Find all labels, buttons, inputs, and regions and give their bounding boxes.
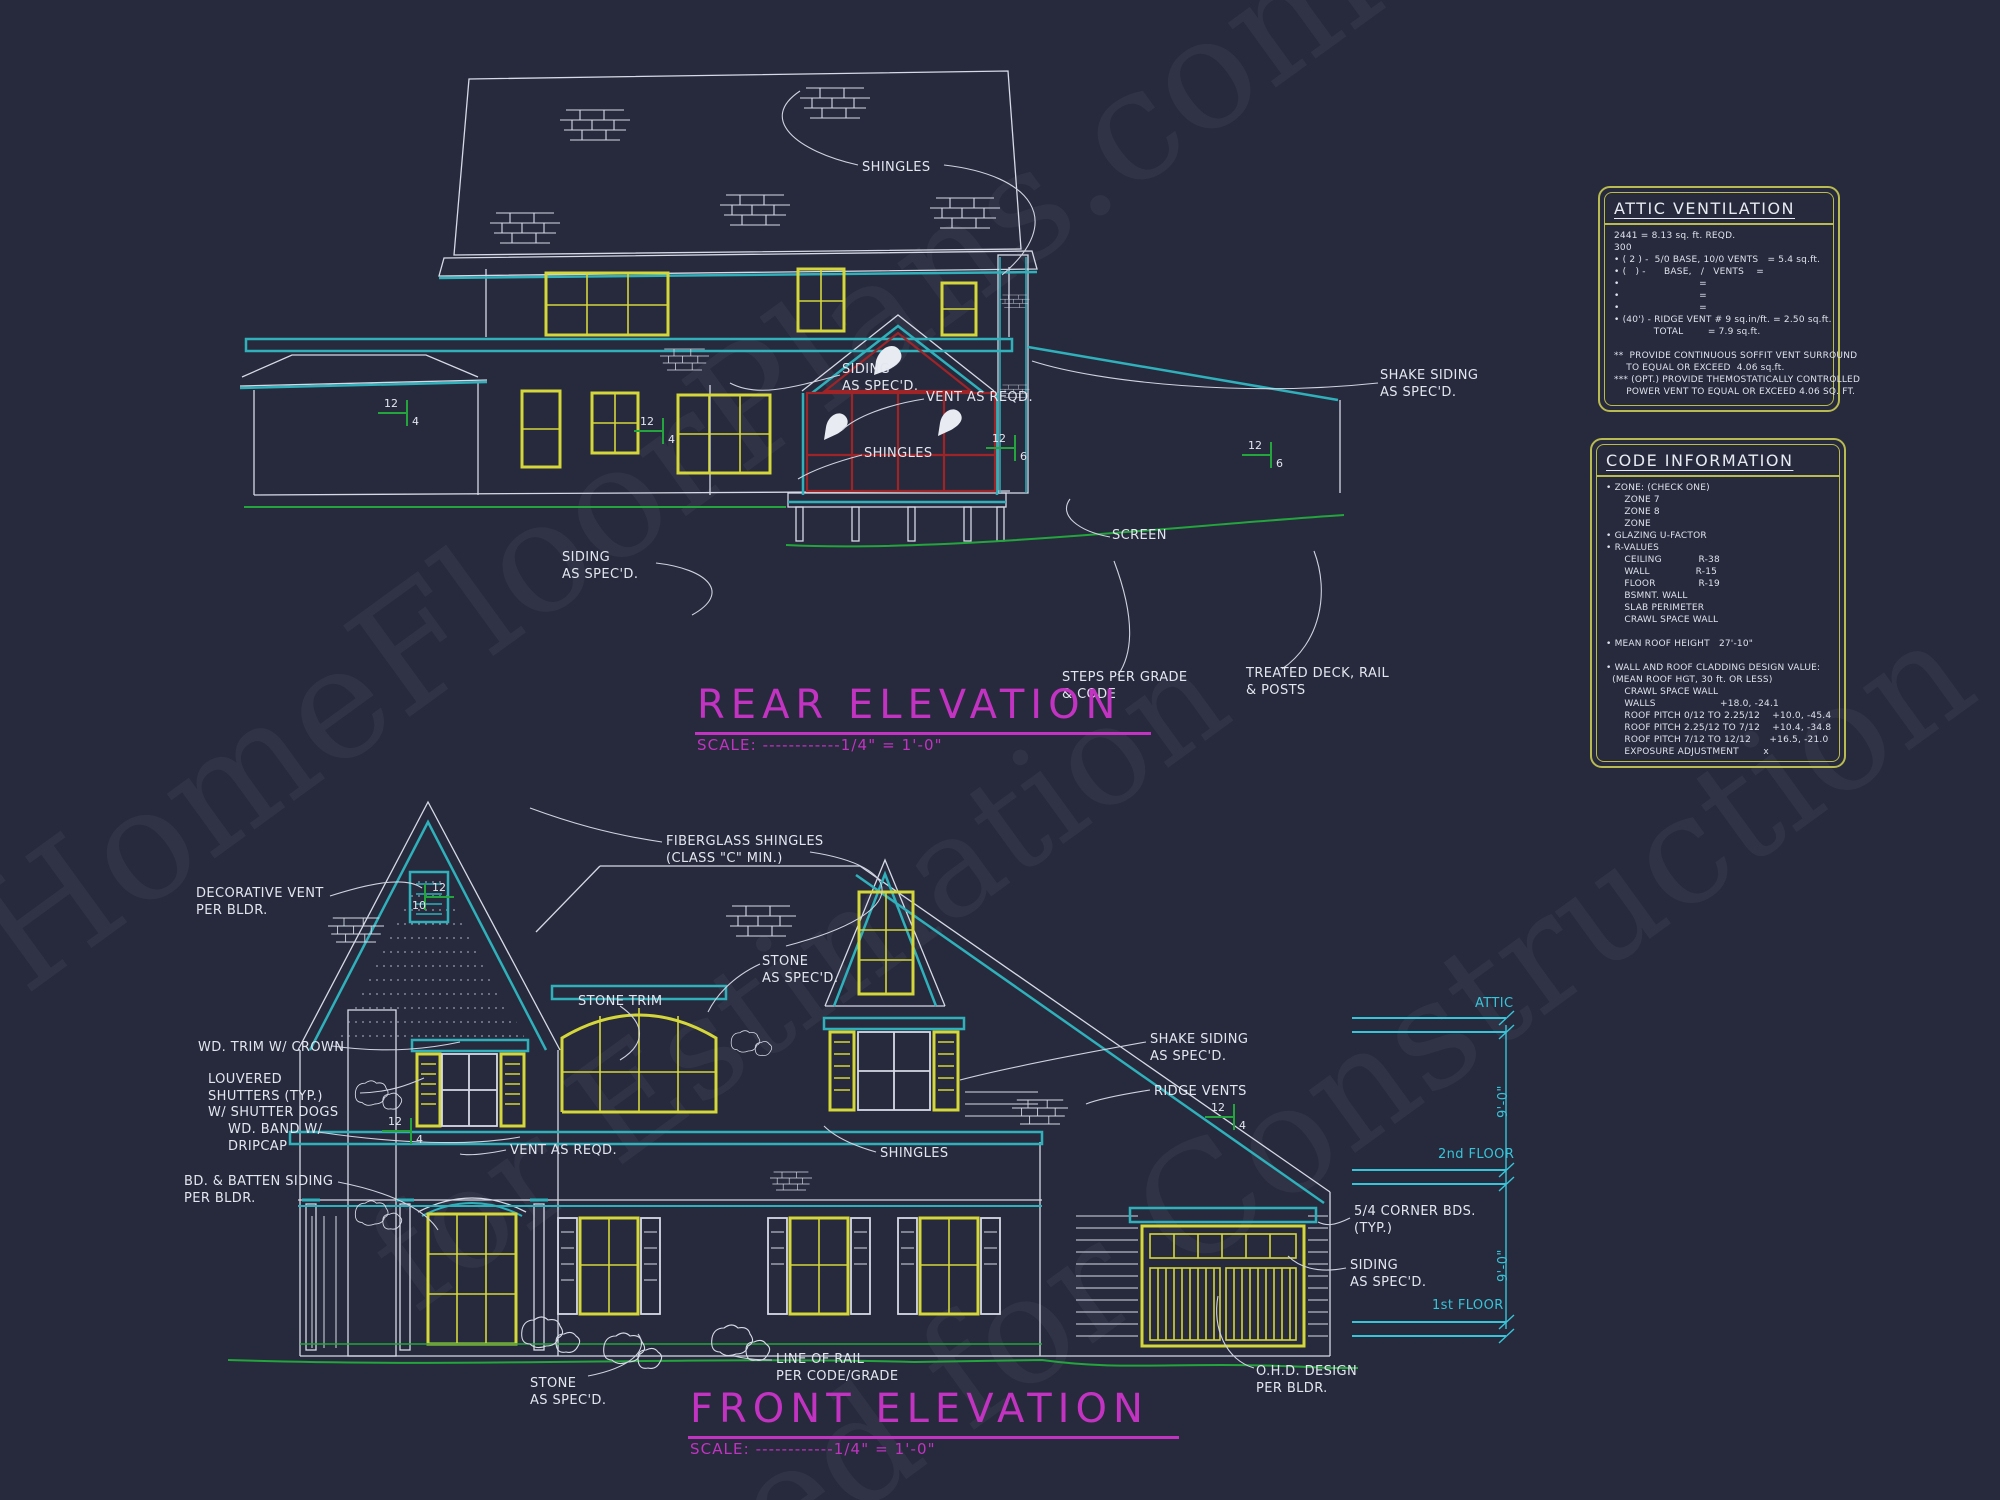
panel-divider (1597, 475, 1839, 477)
panel-line (1614, 339, 1824, 351)
panel-line: • MEAN ROOF HEIGHT 27'-10" (1606, 639, 1830, 651)
panel-line: • ZONE: (CHECK ONE) (1606, 483, 1830, 495)
front-pitch-marker: 12 4 (1205, 1100, 1249, 1136)
front-label-decorative-vent: DECORATIVE VENT PER BLDR. (196, 886, 324, 919)
code-information-panel: CODE INFORMATION • ZONE: (CHECK ONE) ZON… (1590, 438, 1846, 768)
panel-line: • R-VALUES (1606, 543, 1830, 555)
rear-label-vent: VENT AS REQD. (926, 390, 1033, 407)
rear-pitch-marker: 12 4 (634, 414, 678, 450)
panel-line: WALLS +18.0, -24.1 (1606, 699, 1830, 711)
front-label-siding: SIDING AS SPEC'D. (1350, 1258, 1426, 1291)
panel-line: POWER VENT TO EQUAL OR EXCEED 4.06 SQ. F… (1614, 387, 1824, 399)
panel-line: ** PROVIDE CONTINUOUS SOFFIT VENT SURROU… (1614, 351, 1824, 363)
front-label-stone-trim: STONE TRIM (578, 994, 663, 1011)
pitch-rise: 12 (432, 881, 446, 894)
front-label-vent: VENT AS REQD. (510, 1143, 617, 1160)
rear-label-siding-left: SIDING AS SPEC'D. (562, 550, 638, 583)
pitch-rise: 12 (1211, 1101, 1225, 1114)
pitch-run: 4 (416, 1133, 423, 1146)
front-elevation-drawing (170, 780, 1510, 1440)
rear-elevation-scale: SCALE: ------------1/4" = 1'-0" (697, 736, 943, 754)
code-information-title: CODE INFORMATION (1606, 451, 1830, 470)
panel-divider (1605, 223, 1833, 225)
front-label-ohd: O.H.D. DESIGN PER BLDR. (1256, 1364, 1357, 1397)
pitch-run: 4 (412, 415, 419, 428)
panel-line: CEILING R-38 (1606, 555, 1830, 567)
panel-line: ZONE 7 (1606, 495, 1830, 507)
pitch-run: 6 (1020, 450, 1027, 463)
front-label-ridge-vents: RIDGE VENTS (1154, 1084, 1247, 1101)
panel-line: EXPOSURE ADJUSTMENT x (1606, 747, 1830, 759)
panel-line: ROOF PITCH 2.25/12 TO 7/12 +10.4, -34.8 (1606, 723, 1830, 735)
front-pitch-marker: 12 4 (382, 1114, 426, 1150)
pitch-rise: 12 (992, 432, 1006, 445)
panel-line: • (40') - RIDGE VENT # 9 sq.in/ft. = 2.5… (1614, 315, 1824, 327)
rear-pitch-marker: 12 6 (1242, 438, 1286, 474)
rear-label-shake-siding: SHAKE SIDING AS SPEC'D. (1380, 368, 1478, 401)
pitch-run: 4 (668, 433, 675, 446)
rear-label-deck: TREATED DECK, RAIL & POSTS (1246, 666, 1389, 699)
panel-line: ZONE 8 (1606, 507, 1830, 519)
panel-line: WALL R-15 (1606, 567, 1830, 579)
dim-label-2nd-floor: 2nd FLOOR (1438, 1147, 1514, 1164)
panel-line: SLAB PERIMETER (1606, 603, 1830, 615)
panel-line: BSMNT. WALL (1606, 591, 1830, 603)
front-label-line-rail: LINE OF RAIL PER CODE/GRADE (776, 1352, 898, 1385)
panel-line: • ( 2 ) - 5/0 BASE, 10/0 VENTS = 5.4 sq.… (1614, 255, 1824, 267)
rear-label-siding-upper: SIDING AS SPEC'D. (842, 362, 918, 395)
rear-pitch-marker: 12 6 (986, 431, 1030, 467)
panel-line: • ( ) - BASE, / VENTS = (1614, 267, 1824, 279)
front-label-shake-siding: SHAKE SIDING AS SPEC'D. (1150, 1032, 1248, 1065)
pitch-run: 4 (1239, 1119, 1246, 1132)
front-pitch-marker: 12 10 (412, 880, 456, 916)
panel-line: 300 (1614, 243, 1824, 255)
panel-line (1606, 651, 1830, 663)
rear-pitch-marker: 12 4 (378, 396, 422, 432)
pitch-rise: 12 (384, 397, 398, 410)
front-label-fiberglass-shingles: FIBERGLASS SHINGLES (CLASS "C" MIN.) (666, 834, 824, 867)
rear-label-shingles-mid: SHINGLES (864, 446, 933, 463)
panel-line: • = (1614, 291, 1824, 303)
panel-line: (MEAN ROOF HGT, 30 ft. OR LESS) (1606, 675, 1830, 687)
panel-line (1606, 627, 1830, 639)
rear-label-screen: SCREEN (1112, 528, 1167, 545)
blueprint-page: HomeFloorPlans.com used for Construction… (0, 0, 2000, 1500)
panel-line: ROOF PITCH 7/12 TO 12/12 +16.5, -21.0 (1606, 735, 1830, 747)
panel-line: FLOOR R-19 (1606, 579, 1830, 591)
panel-line: ZONE (1606, 519, 1830, 531)
rear-label-shingles-top: SHINGLES (862, 160, 931, 177)
attic-ventilation-title: ATTIC VENTILATION (1614, 199, 1824, 218)
dim-label-9ft-upper: 9'-0" (1496, 1085, 1513, 1118)
attic-ventilation-lines: 2441 = 8.13 sq. ft. REQD.300• ( 2 ) - 5/… (1614, 231, 1824, 399)
pitch-rise: 12 (1248, 439, 1262, 452)
rear-elevation-title: REAR ELEVATION (695, 682, 1151, 735)
front-label-wd-band: WD. BAND W/ DRIPCAP (228, 1122, 322, 1155)
panel-line: *** (OPT.) PROVIDE THEMOSTATICALLY CONTR… (1614, 375, 1824, 387)
front-label-corner-bds: 5/4 CORNER BDS. (TYP.) (1354, 1204, 1476, 1237)
panel-line: CRAWL SPACE WALL (1606, 615, 1830, 627)
front-label-wd-trim: WD. TRIM W/ CROWN (198, 1040, 344, 1057)
front-label-stone-bottom: STONE AS SPEC'D. (530, 1376, 606, 1409)
panel-line: ROOF PITCH 0/12 TO 2.25/12 +10.0, -45.4 (1606, 711, 1830, 723)
panel-line: • = (1614, 303, 1824, 315)
front-elevation-scale: SCALE: ------------1/4" = 1'-0" (690, 1440, 936, 1458)
front-label-louvered-shutters: LOUVERED SHUTTERS (TYP.) W/ SHUTTER DOGS (208, 1072, 339, 1122)
code-information-lines: • ZONE: (CHECK ONE) ZONE 7 ZONE 8 ZONE• … (1606, 483, 1830, 759)
panel-line: • GLAZING U-FACTOR (1606, 531, 1830, 543)
front-label-stone-upper: STONE AS SPEC'D. (762, 954, 838, 987)
panel-line: TO EQUAL OR EXCEED 4.06 sq.ft. (1614, 363, 1824, 375)
pitch-run: 10 (412, 899, 426, 912)
pitch-rise: 12 (388, 1115, 402, 1128)
dim-label-9ft-lower: 9'-0" (1496, 1249, 1513, 1282)
panel-line: 2441 = 8.13 sq. ft. REQD. (1614, 231, 1824, 243)
front-label-bd-batten: BD. & BATTEN SIDING PER BLDR. (184, 1174, 333, 1207)
pitch-run: 6 (1276, 457, 1283, 470)
panel-line: • = (1614, 279, 1824, 291)
dim-label-1st-floor: 1st FLOOR (1432, 1298, 1504, 1315)
panel-line: CRAWL SPACE WALL (1606, 687, 1830, 699)
front-elevation-title: FRONT ELEVATION (688, 1386, 1179, 1439)
dim-label-attic: ATTIC (1475, 996, 1513, 1013)
panel-line: TOTAL = 7.9 sq.ft. (1614, 327, 1824, 339)
panel-line: • WALL AND ROOF CLADDING DESIGN VALUE: (1606, 663, 1830, 675)
rear-elevation-drawing (240, 55, 1380, 735)
pitch-rise: 12 (640, 415, 654, 428)
front-label-shingles: SHINGLES (880, 1146, 949, 1163)
attic-ventilation-panel: ATTIC VENTILATION 2441 = 8.13 sq. ft. RE… (1598, 186, 1840, 412)
